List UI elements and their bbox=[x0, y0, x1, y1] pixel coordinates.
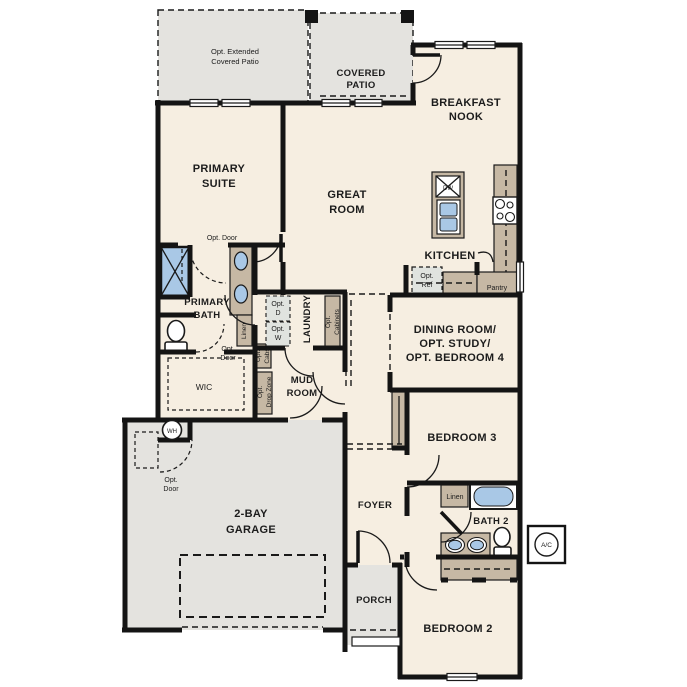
svg-text:BREAKFAST: BREAKFAST bbox=[431, 97, 501, 109]
svg-text:GARAGE: GARAGE bbox=[226, 524, 276, 536]
svg-text:Opt.: Opt. bbox=[420, 273, 433, 280]
svg-text:NOOK: NOOK bbox=[449, 111, 483, 123]
svg-text:2-BAY: 2-BAY bbox=[234, 508, 268, 520]
primary-toilet bbox=[165, 321, 187, 353]
linen-label-bath2: Linen bbox=[446, 494, 463, 501]
svg-text:Opt. Extended: Opt. Extended bbox=[211, 47, 259, 56]
svg-text:PATIO: PATIO bbox=[346, 80, 375, 91]
svg-text:BATH: BATH bbox=[194, 310, 221, 321]
pantry-label: Pantry bbox=[487, 285, 508, 292]
floor-plan: WH A/C Opt. Extended Covered Patio COVER… bbox=[0, 0, 687, 687]
svg-text:DINING ROOM/: DINING ROOM/ bbox=[414, 324, 496, 336]
patio-post bbox=[305, 10, 318, 23]
svg-text:PRIMARY: PRIMARY bbox=[193, 163, 246, 175]
svg-text:Door: Door bbox=[220, 355, 236, 362]
bath2-toilet bbox=[494, 528, 511, 557]
opt-ref-box bbox=[412, 267, 442, 295]
dw-label: DW bbox=[443, 186, 453, 192]
bath2-label: BATH 2 bbox=[473, 516, 508, 527]
island-sink bbox=[437, 200, 460, 234]
porch-label: PORCH bbox=[356, 595, 392, 606]
svg-text:Covered Patio: Covered Patio bbox=[211, 57, 259, 66]
svg-text:OPT. STUDY/: OPT. STUDY/ bbox=[419, 338, 490, 350]
svg-text:Opt.: Opt. bbox=[164, 477, 177, 484]
patio-post bbox=[401, 10, 414, 23]
svg-text:ROOM: ROOM bbox=[329, 204, 364, 216]
svg-text:W: W bbox=[275, 335, 282, 342]
dining-room-label: DINING ROOM/ OPT. STUDY/ OPT. BEDROOM 4 bbox=[406, 324, 505, 364]
shower bbox=[161, 247, 189, 296]
svg-text:Ref: Ref bbox=[422, 282, 433, 289]
bathtub bbox=[470, 484, 517, 509]
floor-plan-page: WH A/C Opt. Extended Covered Patio COVER… bbox=[0, 0, 687, 687]
svg-text:MUD: MUD bbox=[291, 375, 314, 386]
svg-text:A/C: A/C bbox=[541, 542, 552, 549]
bedroom3-label: BEDROOM 3 bbox=[427, 432, 496, 444]
svg-text:Door: Door bbox=[163, 486, 179, 493]
cooktop bbox=[493, 197, 517, 224]
svg-text:Drop Zone: Drop Zone bbox=[266, 376, 273, 407]
laundry-label: LAUNDRY bbox=[302, 295, 313, 344]
svg-text:Opt.: Opt. bbox=[255, 350, 262, 362]
svg-text:GREAT: GREAT bbox=[327, 189, 366, 201]
wic-label: WIC bbox=[196, 382, 213, 392]
water-heater: WH bbox=[163, 421, 182, 440]
svg-text:D: D bbox=[275, 310, 280, 317]
kitchen-label: KITCHEN bbox=[425, 250, 476, 262]
linen-label-primary: Linen bbox=[241, 323, 248, 339]
svg-text:ROOM: ROOM bbox=[287, 388, 318, 399]
svg-text:Opt.: Opt. bbox=[271, 301, 284, 308]
svg-text:Cabinets: Cabinets bbox=[334, 308, 341, 334]
svg-text:COVERED: COVERED bbox=[336, 68, 385, 79]
svg-text:OPT. BEDROOM 4: OPT. BEDROOM 4 bbox=[406, 352, 505, 364]
svg-text:Opt.: Opt. bbox=[221, 346, 234, 353]
svg-text:Opt.: Opt. bbox=[271, 326, 284, 333]
svg-text:WH: WH bbox=[167, 429, 177, 435]
svg-text:Opt.: Opt. bbox=[325, 316, 332, 328]
opt-extended-patio-label: Opt. Extended Covered Patio bbox=[211, 47, 259, 66]
svg-text:SUITE: SUITE bbox=[202, 178, 236, 190]
opt-door-label-suite: Opt. Door bbox=[207, 235, 238, 242]
bedroom2-label: BEDROOM 2 bbox=[423, 623, 492, 635]
foyer-label: FOYER bbox=[358, 500, 392, 511]
svg-text:Opt.: Opt. bbox=[257, 386, 264, 398]
svg-text:Cabs: Cabs bbox=[264, 348, 271, 364]
svg-text:PRIMARY: PRIMARY bbox=[184, 297, 230, 308]
ac-unit: A/C bbox=[528, 526, 565, 563]
